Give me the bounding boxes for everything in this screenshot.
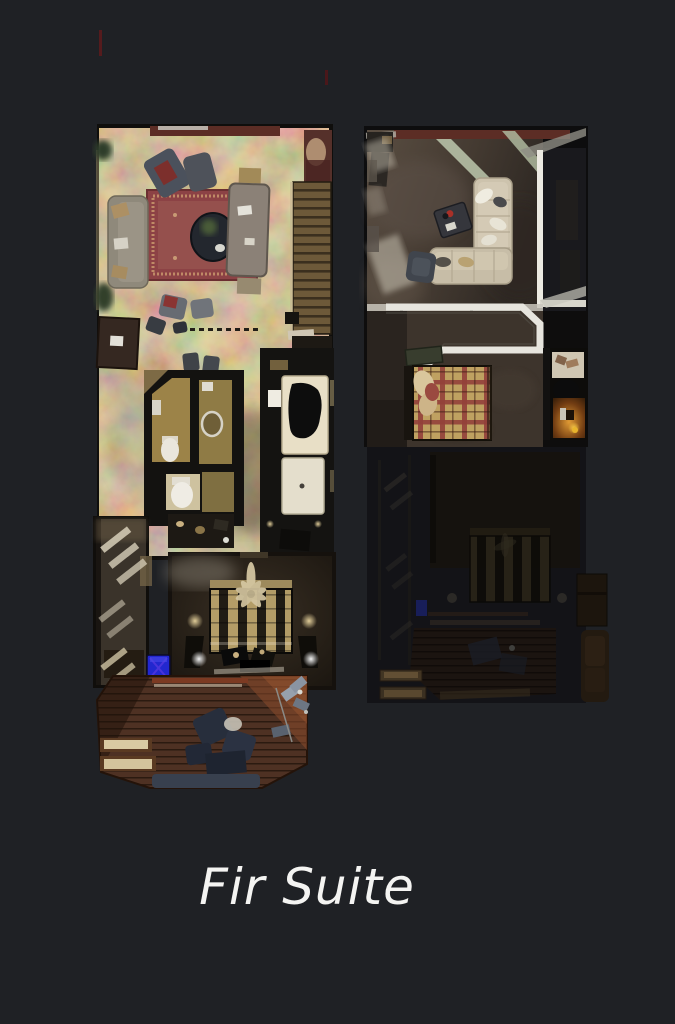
ghost-armchair: [577, 574, 609, 702]
plant: [94, 140, 112, 160]
dining-chair: [237, 278, 262, 295]
writing-desk: [97, 317, 140, 369]
master-bedroom: [164, 552, 336, 690]
dining-chair: [239, 168, 262, 184]
red-artifact-left: [99, 30, 102, 56]
sofa: [108, 196, 148, 288]
top-wall-maroon: [394, 130, 570, 139]
bed-headboard: [404, 366, 413, 440]
kitchen-counter: [202, 382, 213, 391]
window-sliver: [330, 380, 334, 406]
bath-kitchen-block: [144, 370, 244, 526]
scan-artifacts: [99, 30, 328, 85]
red-artifact-right: [325, 70, 328, 85]
staircase: [285, 182, 332, 358]
nook-chair: [553, 379, 579, 401]
landing-shadow: [306, 160, 330, 184]
sconce-glow: [187, 613, 203, 629]
doorway: [240, 552, 268, 558]
ghost-glow: [447, 593, 457, 603]
sofa-pillow: [114, 237, 129, 249]
floorplan-level-2: [363, 126, 609, 703]
loft-bedroom: [364, 307, 588, 447]
loft-living-room: [363, 126, 588, 316]
plant: [95, 283, 113, 311]
ghost-headboard: [470, 528, 550, 536]
ghost-blue-cube: [416, 600, 427, 616]
doorway: [270, 360, 288, 370]
dining-table: [226, 167, 270, 294]
ghost-deck: [410, 628, 556, 700]
stairwell-strip: [93, 516, 152, 688]
bathroom-sink: [152, 400, 161, 415]
luggage: [405, 346, 442, 366]
floorplan-level-1: [93, 124, 336, 788]
guest-bedroom: [260, 348, 334, 564]
ghost-rail: [428, 612, 528, 616]
sconce-glow: [301, 613, 317, 629]
bed-shadow: [487, 366, 492, 440]
stair-railing: [290, 182, 293, 334]
closet-floor: [202, 472, 234, 512]
lower-level-ghost: [367, 447, 609, 703]
bottle: [560, 408, 566, 420]
sofa-pillow: [111, 265, 128, 279]
dresser-band: [168, 514, 234, 548]
void-white-trim: [537, 150, 543, 308]
rail-highlight: [154, 684, 242, 687]
wall-furniture: [367, 226, 379, 252]
top-wall-trim: [158, 126, 208, 130]
sofa-pillow: [435, 257, 451, 267]
toilet: [161, 438, 179, 462]
lamp-glow: [191, 651, 207, 667]
bench: [279, 529, 311, 552]
deck-table: [224, 717, 242, 731]
table-plant: [201, 219, 217, 235]
ghost-glow: [557, 593, 567, 603]
nightstand: [268, 390, 281, 407]
wall-furniture: [367, 160, 377, 182]
toilet: [171, 482, 193, 508]
suite-title: Fir Suite: [0, 858, 614, 916]
bath-nook: [543, 348, 588, 440]
deck: [97, 676, 310, 788]
window-sliver: [330, 470, 334, 492]
loft-armchair: [405, 250, 437, 284]
amber-spot: [572, 427, 578, 433]
lamp-glow: [303, 651, 319, 667]
dark-object: [566, 410, 574, 420]
deck-rail: [152, 678, 248, 683]
kitchen-sink: [202, 412, 222, 436]
stair-object: [285, 312, 299, 324]
